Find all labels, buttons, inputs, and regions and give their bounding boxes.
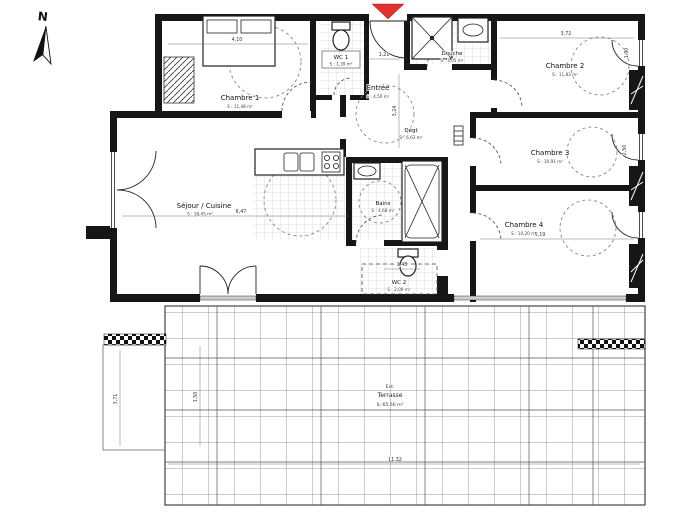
toilet-icon [332,22,350,50]
dim-label: 3,71 [113,394,119,405]
dim-label: 11,32 [388,457,402,463]
room-name: Bains [375,201,390,207]
washbasin-icon [354,163,380,179]
glazed-window-band [454,296,626,300]
dim-label: 1,50 [193,392,199,403]
room-area: S : 4,50 m² [366,94,389,99]
room-name: WC 1 [334,55,349,61]
washbasin-icon [458,18,488,42]
terrace-deck [165,306,645,505]
dim-label: 2,50 [622,145,628,156]
dim-label: 3,72 [561,31,572,37]
paving-band-right [578,339,645,349]
room-name: Douche [442,51,464,57]
room-name: WC 2 [392,280,407,286]
room-name: Chambre 4 [505,221,544,229]
wardrobe-icon [164,57,194,103]
north-label: N [37,9,48,24]
room-area: S : 4,68 m² [371,208,394,213]
room-name: Dégt [404,127,418,134]
room-area: S : 3,05 m² [440,58,463,63]
dim-label: 1,90 [624,48,630,59]
room-area: S : 1,39 m² [329,62,352,67]
room-name: Chambre 2 [546,62,585,70]
kitchen-counter [255,149,344,175]
terrace [103,306,645,505]
room-name: Entrée [367,84,390,92]
dim-label: 1,21 [379,52,390,58]
room-area: S : 6,63 m² [399,135,422,140]
room-area: S : 2,09 m² [387,287,410,292]
room-area: S : 11,48 m² [227,104,253,109]
terrace-name: Terrasse [377,392,403,399]
room-name: Chambre 3 [531,149,570,157]
dim-label: 6,47 [236,209,247,215]
paving-band-left [104,334,166,345]
room-name: Séjour / Cuisine [177,202,232,210]
room-area: S : 10,91 m² [537,159,563,164]
dim-label: 5,19 [535,232,546,238]
glazed-door-band [200,296,256,300]
terrace-prefix: Ext. [386,384,395,390]
dim-label: 1,48 [397,262,408,268]
room-label-entree: Entrée S : 4,50 m² [366,84,389,99]
room-name: Chambre 1 [221,94,260,102]
room-area: S : 38,45 m² [187,212,213,217]
room-area: S : 10,20 m² [511,231,537,236]
room-area: S : 11,83 m² [552,72,578,77]
dim-label: 4,10 [232,37,243,43]
terrace-area: S: 65,60 m² [377,402,404,408]
floorplan-canvas: N [0,0,680,524]
dim-label: 3,24 [392,106,398,117]
bathtub-icon [402,161,442,242]
